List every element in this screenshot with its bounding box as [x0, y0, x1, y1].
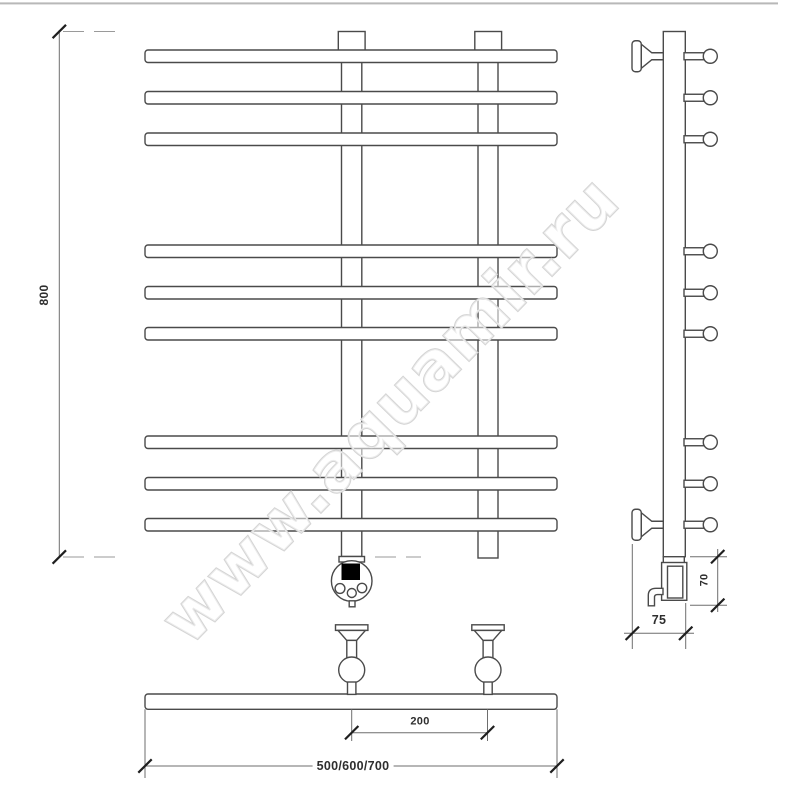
towel-bar — [145, 50, 557, 63]
side-post — [663, 32, 685, 557]
plan-bracket-left — [336, 625, 368, 695]
towel-bar — [145, 133, 557, 146]
wall-flange — [472, 625, 504, 631]
label-width-options: 500/600/700 — [313, 760, 394, 773]
bracket-stem — [347, 640, 357, 657]
drawing-canvas: www.aquamir.ru — [0, 0, 800, 800]
thermostat-display — [342, 564, 361, 581]
bracket-stem — [484, 682, 492, 694]
label-bracket-spacing: 200 — [410, 717, 429, 728]
label-overall-height: 800 — [38, 285, 50, 306]
wall-bracket-top — [632, 41, 663, 72]
bracket-cone — [338, 630, 365, 640]
wall-flange — [632, 41, 641, 72]
element-neck — [663, 557, 684, 563]
bar-end-hooks — [684, 49, 717, 532]
element-inner — [668, 566, 683, 598]
towel-bar — [145, 92, 557, 105]
side-view — [632, 32, 717, 606]
label-wall-depth: 75 — [652, 614, 667, 627]
bracket-stem — [483, 640, 493, 657]
bracket-ball — [339, 657, 365, 683]
bracket-cone — [641, 44, 663, 68]
towel-bar — [145, 519, 557, 532]
thermostat-button — [347, 589, 356, 598]
wall-bracket-bottom — [632, 509, 663, 540]
plan-bracket-right — [472, 625, 504, 695]
bracket-cone — [641, 513, 663, 537]
watermark-text: www.aquamir.ru — [146, 161, 634, 659]
thermostat-button — [335, 584, 345, 594]
left-post-cap — [338, 32, 365, 52]
thermostat-stem — [349, 601, 355, 607]
bracket-cone — [474, 630, 501, 640]
plan-bar — [145, 694, 557, 709]
technical-drawing-towel-rail: www.aquamir.ru 800 200 500/600/700 75 70 — [0, 0, 800, 800]
wall-flange — [336, 625, 368, 631]
right-post-cap — [475, 32, 502, 52]
heating-element-box — [648, 557, 687, 606]
power-cable — [648, 588, 663, 606]
bracket-stem — [348, 682, 356, 694]
thermostat-button — [357, 583, 366, 592]
label-heater-height: 70 — [700, 574, 711, 587]
thermostat-head — [331, 557, 372, 607]
bracket-ball — [475, 657, 501, 683]
wall-flange — [632, 509, 641, 540]
photo-top-edge — [0, 2, 778, 4]
